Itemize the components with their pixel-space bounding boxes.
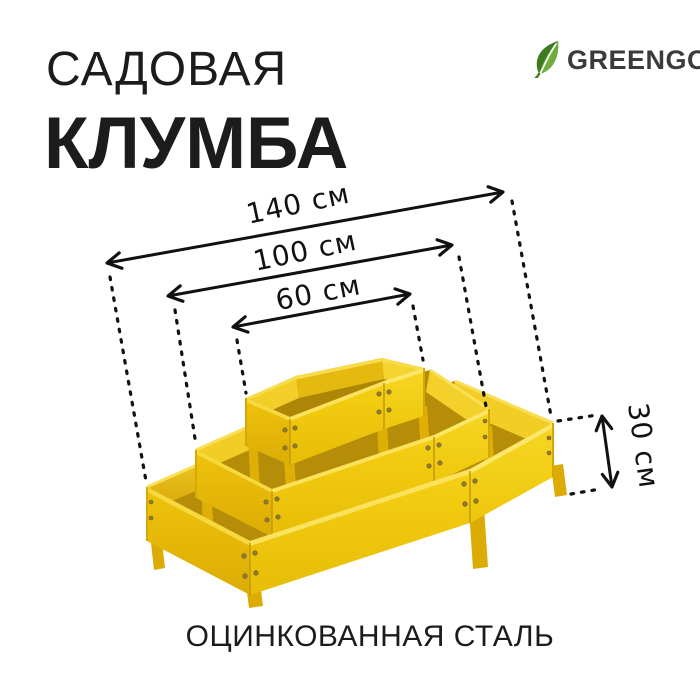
dotted-guide-line xyxy=(512,201,551,416)
dimension-label-30: 30 см xyxy=(621,401,666,491)
product-card: САДОВАЯ КЛУМБА GREENGO xyxy=(0,0,700,700)
dotted-guide-line xyxy=(237,340,246,393)
dotted-guide-line xyxy=(571,489,600,494)
dimension-label-100: 100 см xyxy=(250,224,359,278)
garden-bed xyxy=(147,358,567,608)
dotted-guide-line xyxy=(110,277,146,481)
caption-material: ОЦИНКОВАННАЯ СТАЛЬ xyxy=(170,620,570,654)
dimension-arrow-30 xyxy=(602,416,612,487)
dotted-guide-line xyxy=(558,415,597,421)
dotted-guide-line xyxy=(413,306,423,360)
product-illustration: 140 см 100 см 60 см 30 см xyxy=(0,0,700,700)
dotted-guide-line xyxy=(175,310,196,445)
